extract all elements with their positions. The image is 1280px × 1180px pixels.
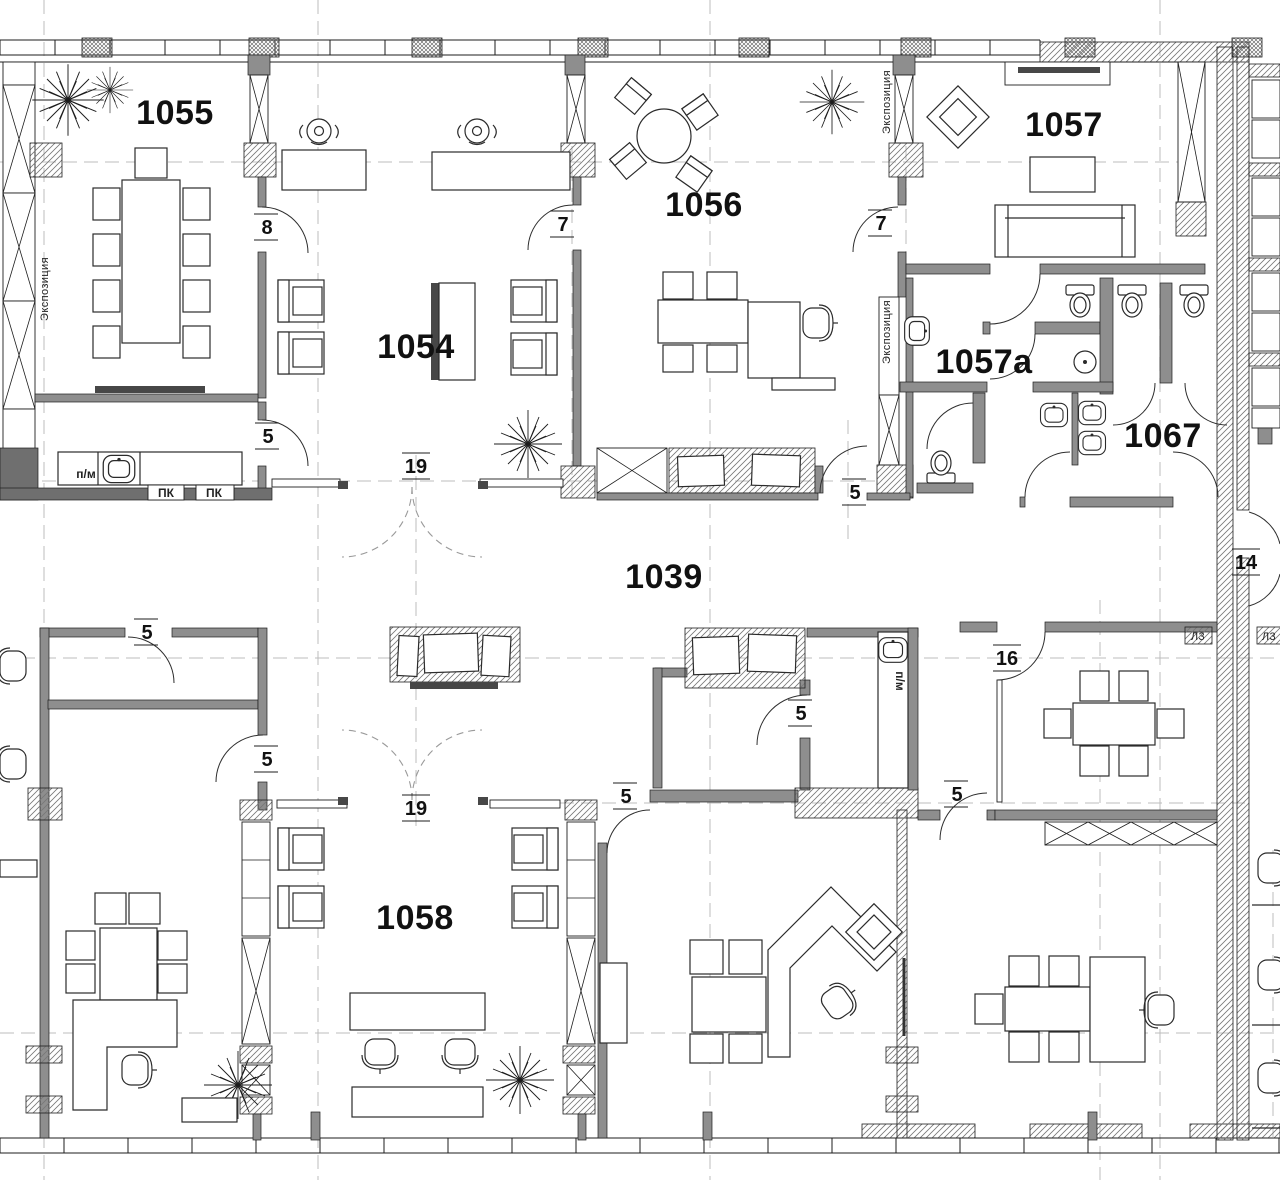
svg-text:5: 5 — [795, 703, 806, 725]
svg-text:5: 5 — [261, 749, 272, 771]
svg-text:5: 5 — [951, 784, 962, 806]
room-label-1056: 1056 — [665, 186, 743, 224]
room-label-1057a: 1057a — [935, 343, 1033, 381]
floor-plan-page: 1055 1054 1056 1057 1057a 1067 1039 1058… — [0, 0, 1280, 1180]
room-label-1054: 1054 — [377, 328, 455, 366]
door-tag-8: 8 — [254, 214, 278, 240]
meeting-room-br-furniture — [1044, 671, 1184, 776]
door-tag-5f: 5 — [788, 700, 812, 726]
door-tag-16: 16 — [993, 645, 1021, 671]
door-tag-5a: 5 — [255, 423, 279, 449]
svg-text:5: 5 — [620, 786, 631, 808]
svg-text:19: 19 — [405, 456, 427, 478]
hatch-label-2: Л3 — [1262, 631, 1276, 643]
door-tag-19a: 19 — [402, 453, 430, 479]
room-label-1067: 1067 — [1124, 417, 1202, 455]
door-tag-5b: 5 — [842, 479, 866, 505]
sink-label-vestibule: п/м — [76, 467, 96, 481]
exposition-label-3: Экспозиция — [881, 300, 893, 364]
room-1056-furniture — [610, 70, 865, 390]
door-tag-19b: 19 — [402, 795, 430, 821]
svg-text:5: 5 — [262, 426, 273, 448]
sink-label-kitchenette: п/м — [893, 671, 907, 691]
fire-cabinet-label-2: ПК — [206, 486, 223, 500]
top-window-band — [0, 38, 1262, 62]
svg-text:7: 7 — [875, 213, 886, 235]
fire-cabinet-label-1: ПК — [158, 486, 175, 500]
svg-text:5: 5 — [849, 482, 860, 504]
room-label-1058: 1058 — [376, 899, 454, 937]
svg-text:5: 5 — [141, 622, 152, 644]
right-shaft-walls — [1217, 47, 1280, 1140]
room-1054-furniture — [278, 119, 570, 478]
door-tag-5c: 5 — [134, 619, 158, 645]
door-tag-5e: 5 — [613, 783, 637, 809]
room-label-1057: 1057 — [1025, 106, 1103, 144]
svg-text:16: 16 — [996, 648, 1018, 670]
room-1057-furniture — [927, 62, 1135, 257]
room-label-1055: 1055 — [136, 94, 214, 132]
door-tag-7a: 7 — [550, 211, 574, 237]
exposition-label-2: Экспозиция — [881, 70, 893, 134]
door-tag-14: 14 — [1232, 549, 1260, 575]
svg-text:14: 14 — [1235, 552, 1258, 574]
room-label-1039: 1039 — [625, 558, 703, 596]
svg-text:19: 19 — [405, 798, 427, 820]
floor-plan-canvas: 1055 1054 1056 1057 1057a 1067 1039 1058… — [0, 0, 1280, 1180]
door-tag-5d: 5 — [254, 746, 278, 772]
svg-text:8: 8 — [261, 217, 272, 239]
exposition-label-1: Экспозиция — [39, 257, 51, 321]
left-exposition-wall — [0, 62, 62, 500]
office-br-furniture — [975, 956, 1174, 1062]
svg-text:7: 7 — [557, 214, 568, 236]
center-office-furniture — [600, 632, 908, 1063]
hatch-label-1: Л3 — [1191, 631, 1205, 643]
door-tag-7b: 7 — [868, 210, 892, 236]
